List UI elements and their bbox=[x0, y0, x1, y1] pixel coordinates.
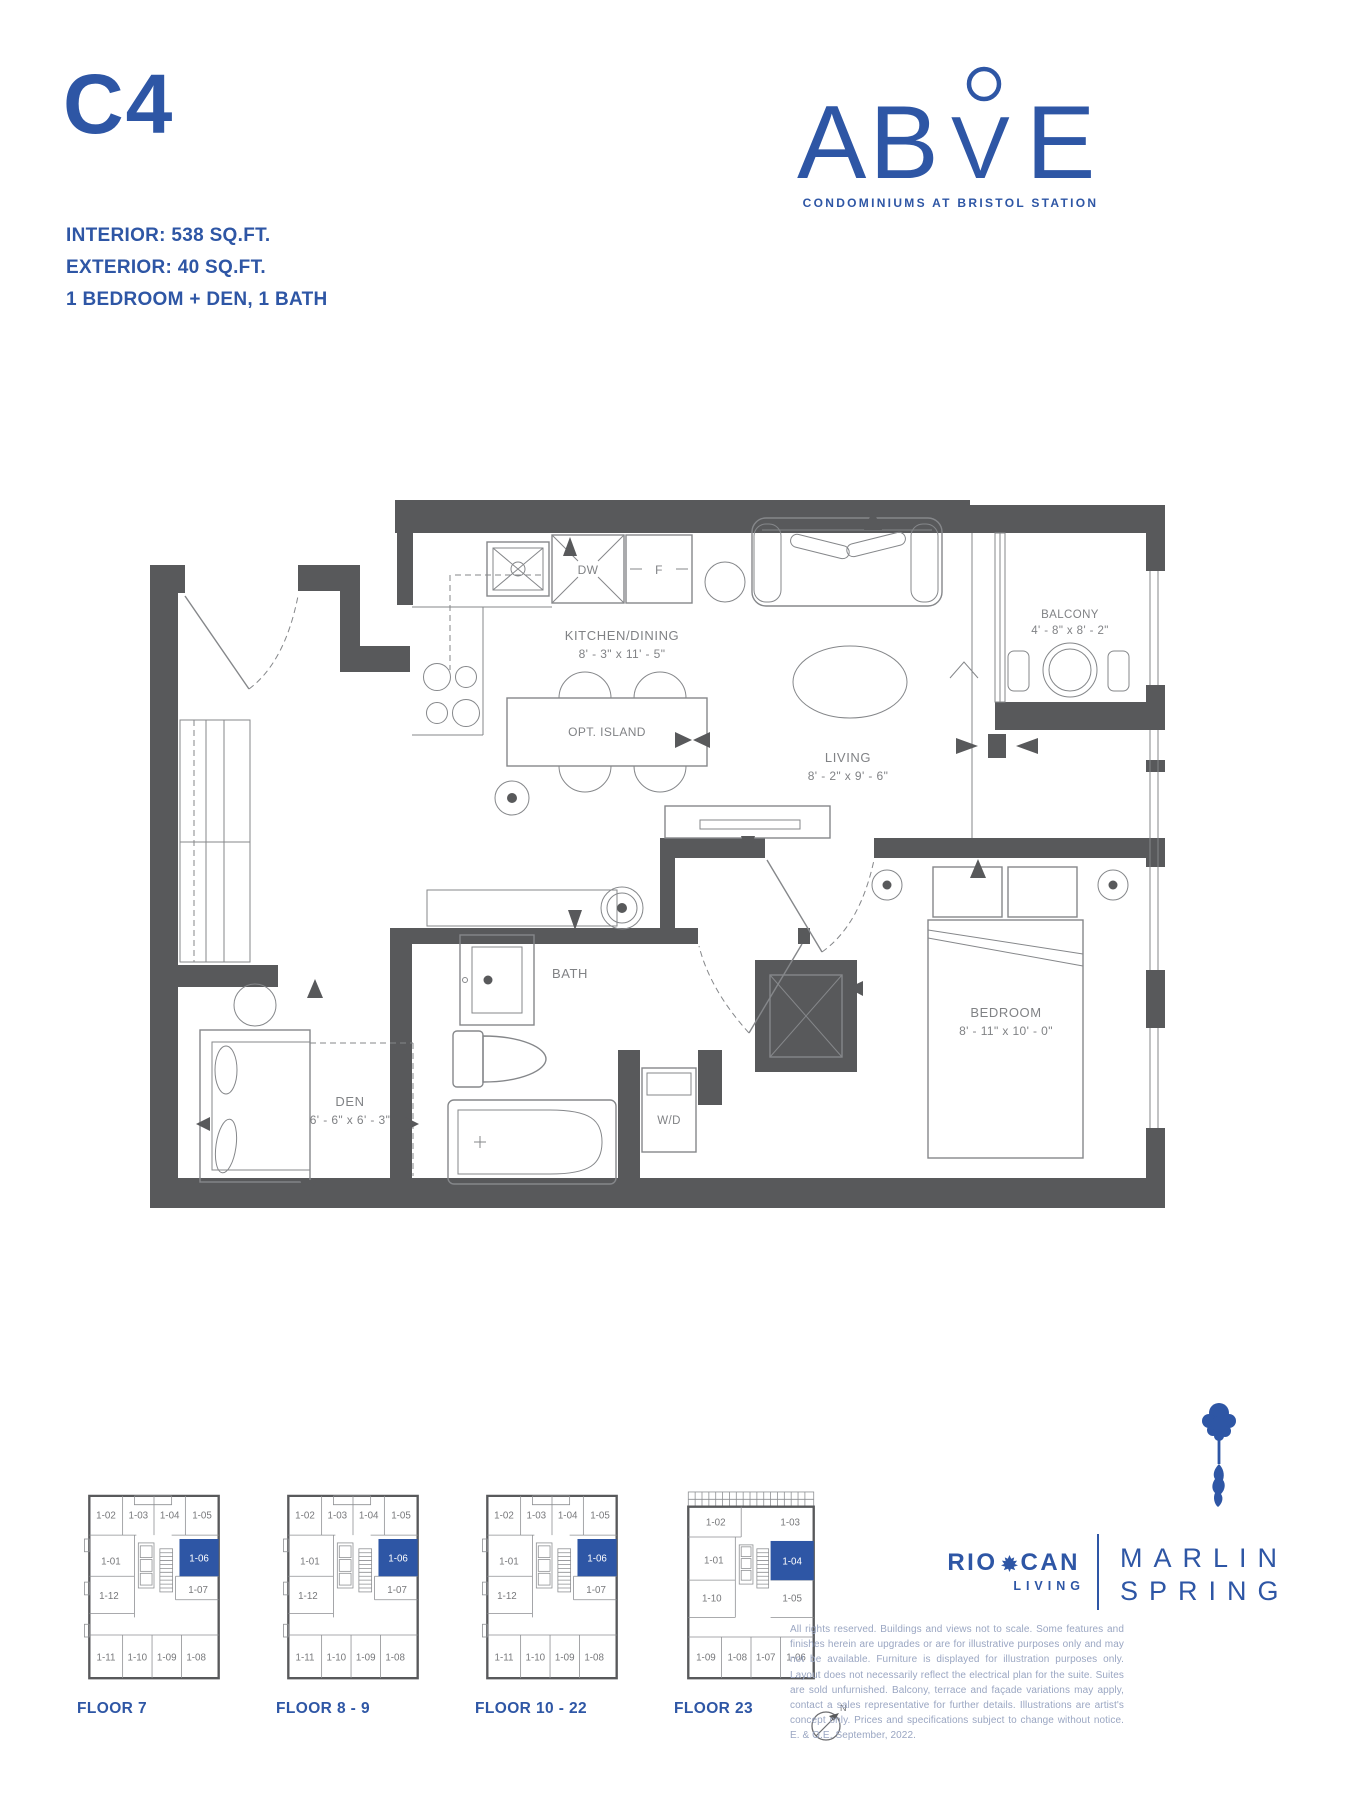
floor-label-7: FLOOR 7 bbox=[77, 1700, 147, 1718]
brochure-page: C4 INTERIOR: 538 SQ.FT. EXTERIOR: 40 SQ.… bbox=[0, 0, 1350, 1800]
unit-label: 1-08 bbox=[186, 1653, 206, 1664]
unit-label: 1-01 bbox=[300, 1556, 320, 1567]
unit-label: 1-03 bbox=[328, 1510, 348, 1521]
unit-label: 1-03 bbox=[527, 1510, 547, 1521]
spec-exterior: EXTERIOR: 40 SQ.FT. bbox=[66, 252, 328, 284]
marlin-line1: MARLIN bbox=[1120, 1542, 1290, 1575]
living-label: LIVING bbox=[825, 750, 871, 765]
unit-label-highlighted: 1-06 bbox=[587, 1554, 607, 1565]
unit-label: 1-01 bbox=[704, 1556, 724, 1567]
unit-label: 1-05 bbox=[590, 1510, 610, 1521]
unit-label: 1-02 bbox=[706, 1517, 726, 1528]
legal-disclaimer: All rights reserved. Buildings and views… bbox=[790, 1622, 1124, 1744]
unit-label: 1-07 bbox=[756, 1653, 776, 1664]
unit-label: 1-09 bbox=[555, 1653, 575, 1664]
maple-leaf-icon bbox=[1001, 1555, 1018, 1572]
tree-logo-icon bbox=[1198, 1398, 1240, 1516]
bath-label: BATH bbox=[552, 966, 588, 981]
balcony-furniture bbox=[956, 643, 1129, 758]
unit-label: 1-07 bbox=[188, 1585, 208, 1596]
unit-label: 1-01 bbox=[101, 1556, 121, 1567]
unit-label: 1-02 bbox=[494, 1510, 514, 1521]
keyplan-floor-8-9: 1-02 1-03 1-04 1-05 1-01 1-06 1-07 1-12 … bbox=[274, 1490, 432, 1686]
unit-code-title: C4 bbox=[63, 56, 174, 153]
unit-label: 1-12 bbox=[99, 1591, 119, 1602]
unit-label: 1-10 bbox=[702, 1594, 722, 1605]
unit-label: 1-10 bbox=[526, 1653, 546, 1664]
unit-label: 1-04 bbox=[359, 1510, 379, 1521]
marlin-spring-logo: MARLIN SPRING bbox=[1120, 1542, 1290, 1608]
spec-interior: INTERIOR: 538 SQ.FT. bbox=[66, 220, 328, 252]
riocan-word-right: CAN bbox=[1021, 1549, 1081, 1577]
unit-label: 1-11 bbox=[97, 1653, 116, 1664]
fridge-label: F bbox=[655, 563, 663, 577]
floor-label-8-9: FLOOR 8 - 9 bbox=[276, 1700, 370, 1718]
unit-specs: INTERIOR: 538 SQ.FT. EXTERIOR: 40 SQ.FT.… bbox=[66, 220, 328, 316]
brand-tagline: CONDOMINIUMS AT BRISTOL STATION bbox=[793, 196, 1108, 210]
unit-label: 1-02 bbox=[295, 1510, 315, 1521]
unit-label: 1-12 bbox=[298, 1591, 318, 1602]
unit-label: 1-08 bbox=[584, 1653, 604, 1664]
unit-label-highlighted: 1-04 bbox=[782, 1556, 802, 1567]
unit-label: 1-11 bbox=[296, 1653, 315, 1664]
unit-label: 1-09 bbox=[157, 1653, 177, 1664]
spec-rooms: 1 BEDROOM + DEN, 1 BATH bbox=[66, 284, 328, 316]
unit-label: 1-05 bbox=[782, 1594, 802, 1605]
den-label: DEN bbox=[335, 1094, 364, 1109]
washer-dryer bbox=[642, 1068, 696, 1152]
unit-label: 1-08 bbox=[727, 1653, 747, 1664]
floor-label-23: FLOOR 23 bbox=[674, 1700, 753, 1718]
above-logo: AB V E bbox=[793, 60, 1108, 192]
unit-label-highlighted: 1-06 bbox=[189, 1554, 209, 1565]
washer-dryer-label: W/D bbox=[657, 1115, 681, 1127]
riocan-word-left: RIO bbox=[947, 1549, 997, 1577]
above-logo-ab: AB bbox=[797, 85, 942, 192]
above-logo-o-icon bbox=[969, 69, 999, 99]
den-dims: 6' - 6" x 6' - 3" bbox=[310, 1113, 391, 1127]
plan-windows bbox=[972, 533, 1158, 1128]
bedroom-dims: 8' - 11" x 10' - 0" bbox=[959, 1024, 1053, 1038]
unit-label: 1-11 bbox=[495, 1653, 514, 1664]
unit-label: 1-04 bbox=[558, 1510, 578, 1521]
unit-label: 1-01 bbox=[499, 1556, 519, 1567]
riocan-sub-label: LIVING bbox=[930, 1579, 1085, 1593]
living-furniture bbox=[705, 518, 978, 718]
unit-label: 1-05 bbox=[192, 1510, 212, 1521]
living-dims: 8' - 2" x 9' - 6" bbox=[808, 769, 889, 783]
logo-divider bbox=[1097, 1534, 1099, 1610]
dishwasher-label: DW bbox=[578, 563, 599, 577]
unit-label: 1-07 bbox=[586, 1585, 606, 1596]
unit-label: 1-05 bbox=[391, 1510, 411, 1521]
marlin-line2: SPRING bbox=[1120, 1575, 1290, 1608]
keyplan-floor-10-22: 1-02 1-03 1-04 1-05 1-01 1-06 1-07 1-12 … bbox=[473, 1490, 631, 1686]
floor-plan-drawing: KITCHEN/DINING 8' - 3" x 11' - 5" LIVING… bbox=[150, 430, 1165, 1215]
unit-label: 1-09 bbox=[356, 1653, 376, 1664]
floor-label-10-22: FLOOR 10 - 22 bbox=[475, 1700, 587, 1718]
riocan-living-logo: RIO CAN LIVING bbox=[930, 1549, 1080, 1593]
keyplan-floor-7: 1-02 1-03 1-04 1-05 1-01 1-06 1-07 1-12 … bbox=[75, 1490, 233, 1686]
unit-label: 1-09 bbox=[696, 1653, 716, 1664]
balcony-label: BALCONY bbox=[1041, 609, 1099, 621]
unit-label: 1-10 bbox=[128, 1653, 148, 1664]
unit-label: 1-03 bbox=[780, 1517, 800, 1528]
unit-label: 1-03 bbox=[129, 1510, 149, 1521]
above-logo-e: E bbox=[1026, 85, 1095, 192]
kitchen-label: KITCHEN/DINING bbox=[565, 628, 680, 643]
unit-label: 1-08 bbox=[385, 1653, 405, 1664]
balcony-dims: 4' - 8" x 8' - 2" bbox=[1031, 625, 1109, 637]
bedroom-label: BEDROOM bbox=[970, 1005, 1041, 1020]
den-furniture bbox=[196, 979, 419, 1200]
plan-walls bbox=[150, 500, 1165, 1208]
unit-label: 1-02 bbox=[96, 1510, 116, 1521]
unit-label: 1-12 bbox=[497, 1591, 517, 1602]
unit-label: 1-07 bbox=[387, 1585, 407, 1596]
kitchen-dims: 8' - 3" x 11' - 5" bbox=[579, 647, 666, 661]
unit-label: 1-10 bbox=[327, 1653, 347, 1664]
unit-label: 1-04 bbox=[160, 1510, 180, 1521]
unit-label-highlighted: 1-06 bbox=[388, 1554, 408, 1565]
entry-closet bbox=[180, 720, 250, 962]
island-label: OPT. ISLAND bbox=[568, 725, 646, 739]
above-logo-v: V bbox=[951, 98, 1010, 192]
